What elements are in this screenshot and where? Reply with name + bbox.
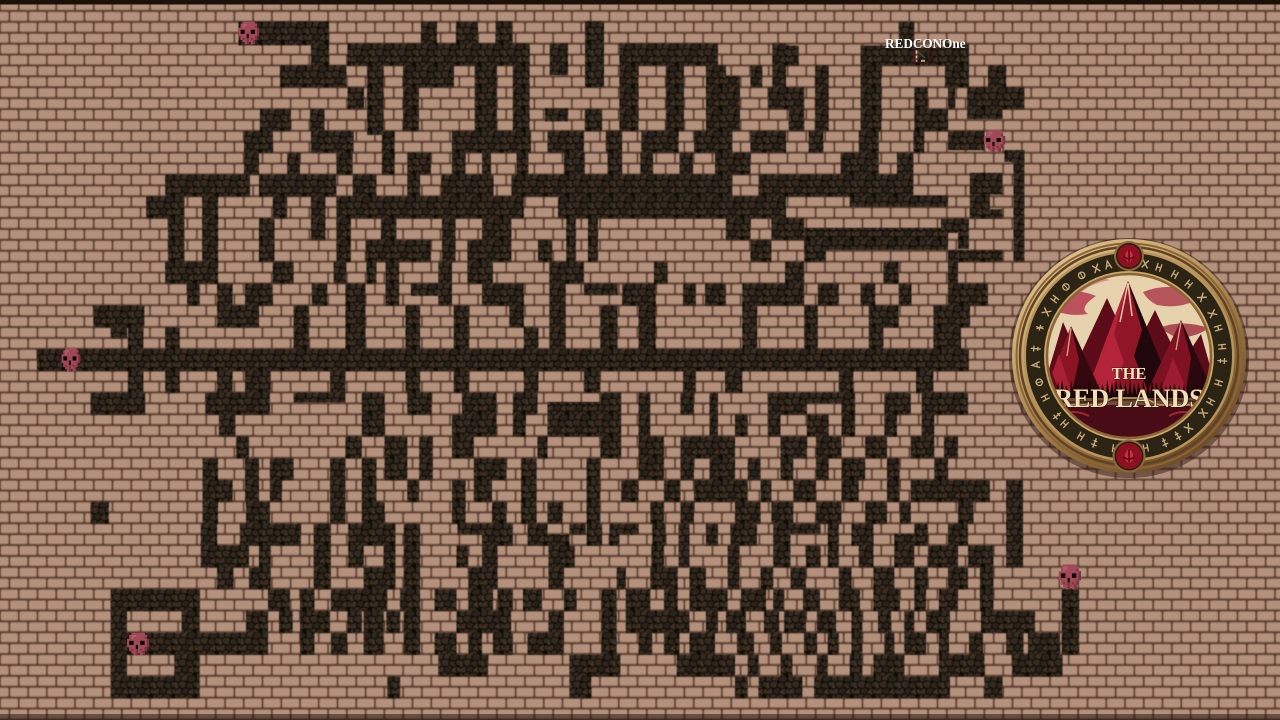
svg-text:THE: THE (1112, 364, 1147, 383)
svg-text:RED LANDS: RED LANDS (1054, 384, 1204, 413)
svg-text:REDCONOne: REDCONOne (885, 36, 966, 51)
